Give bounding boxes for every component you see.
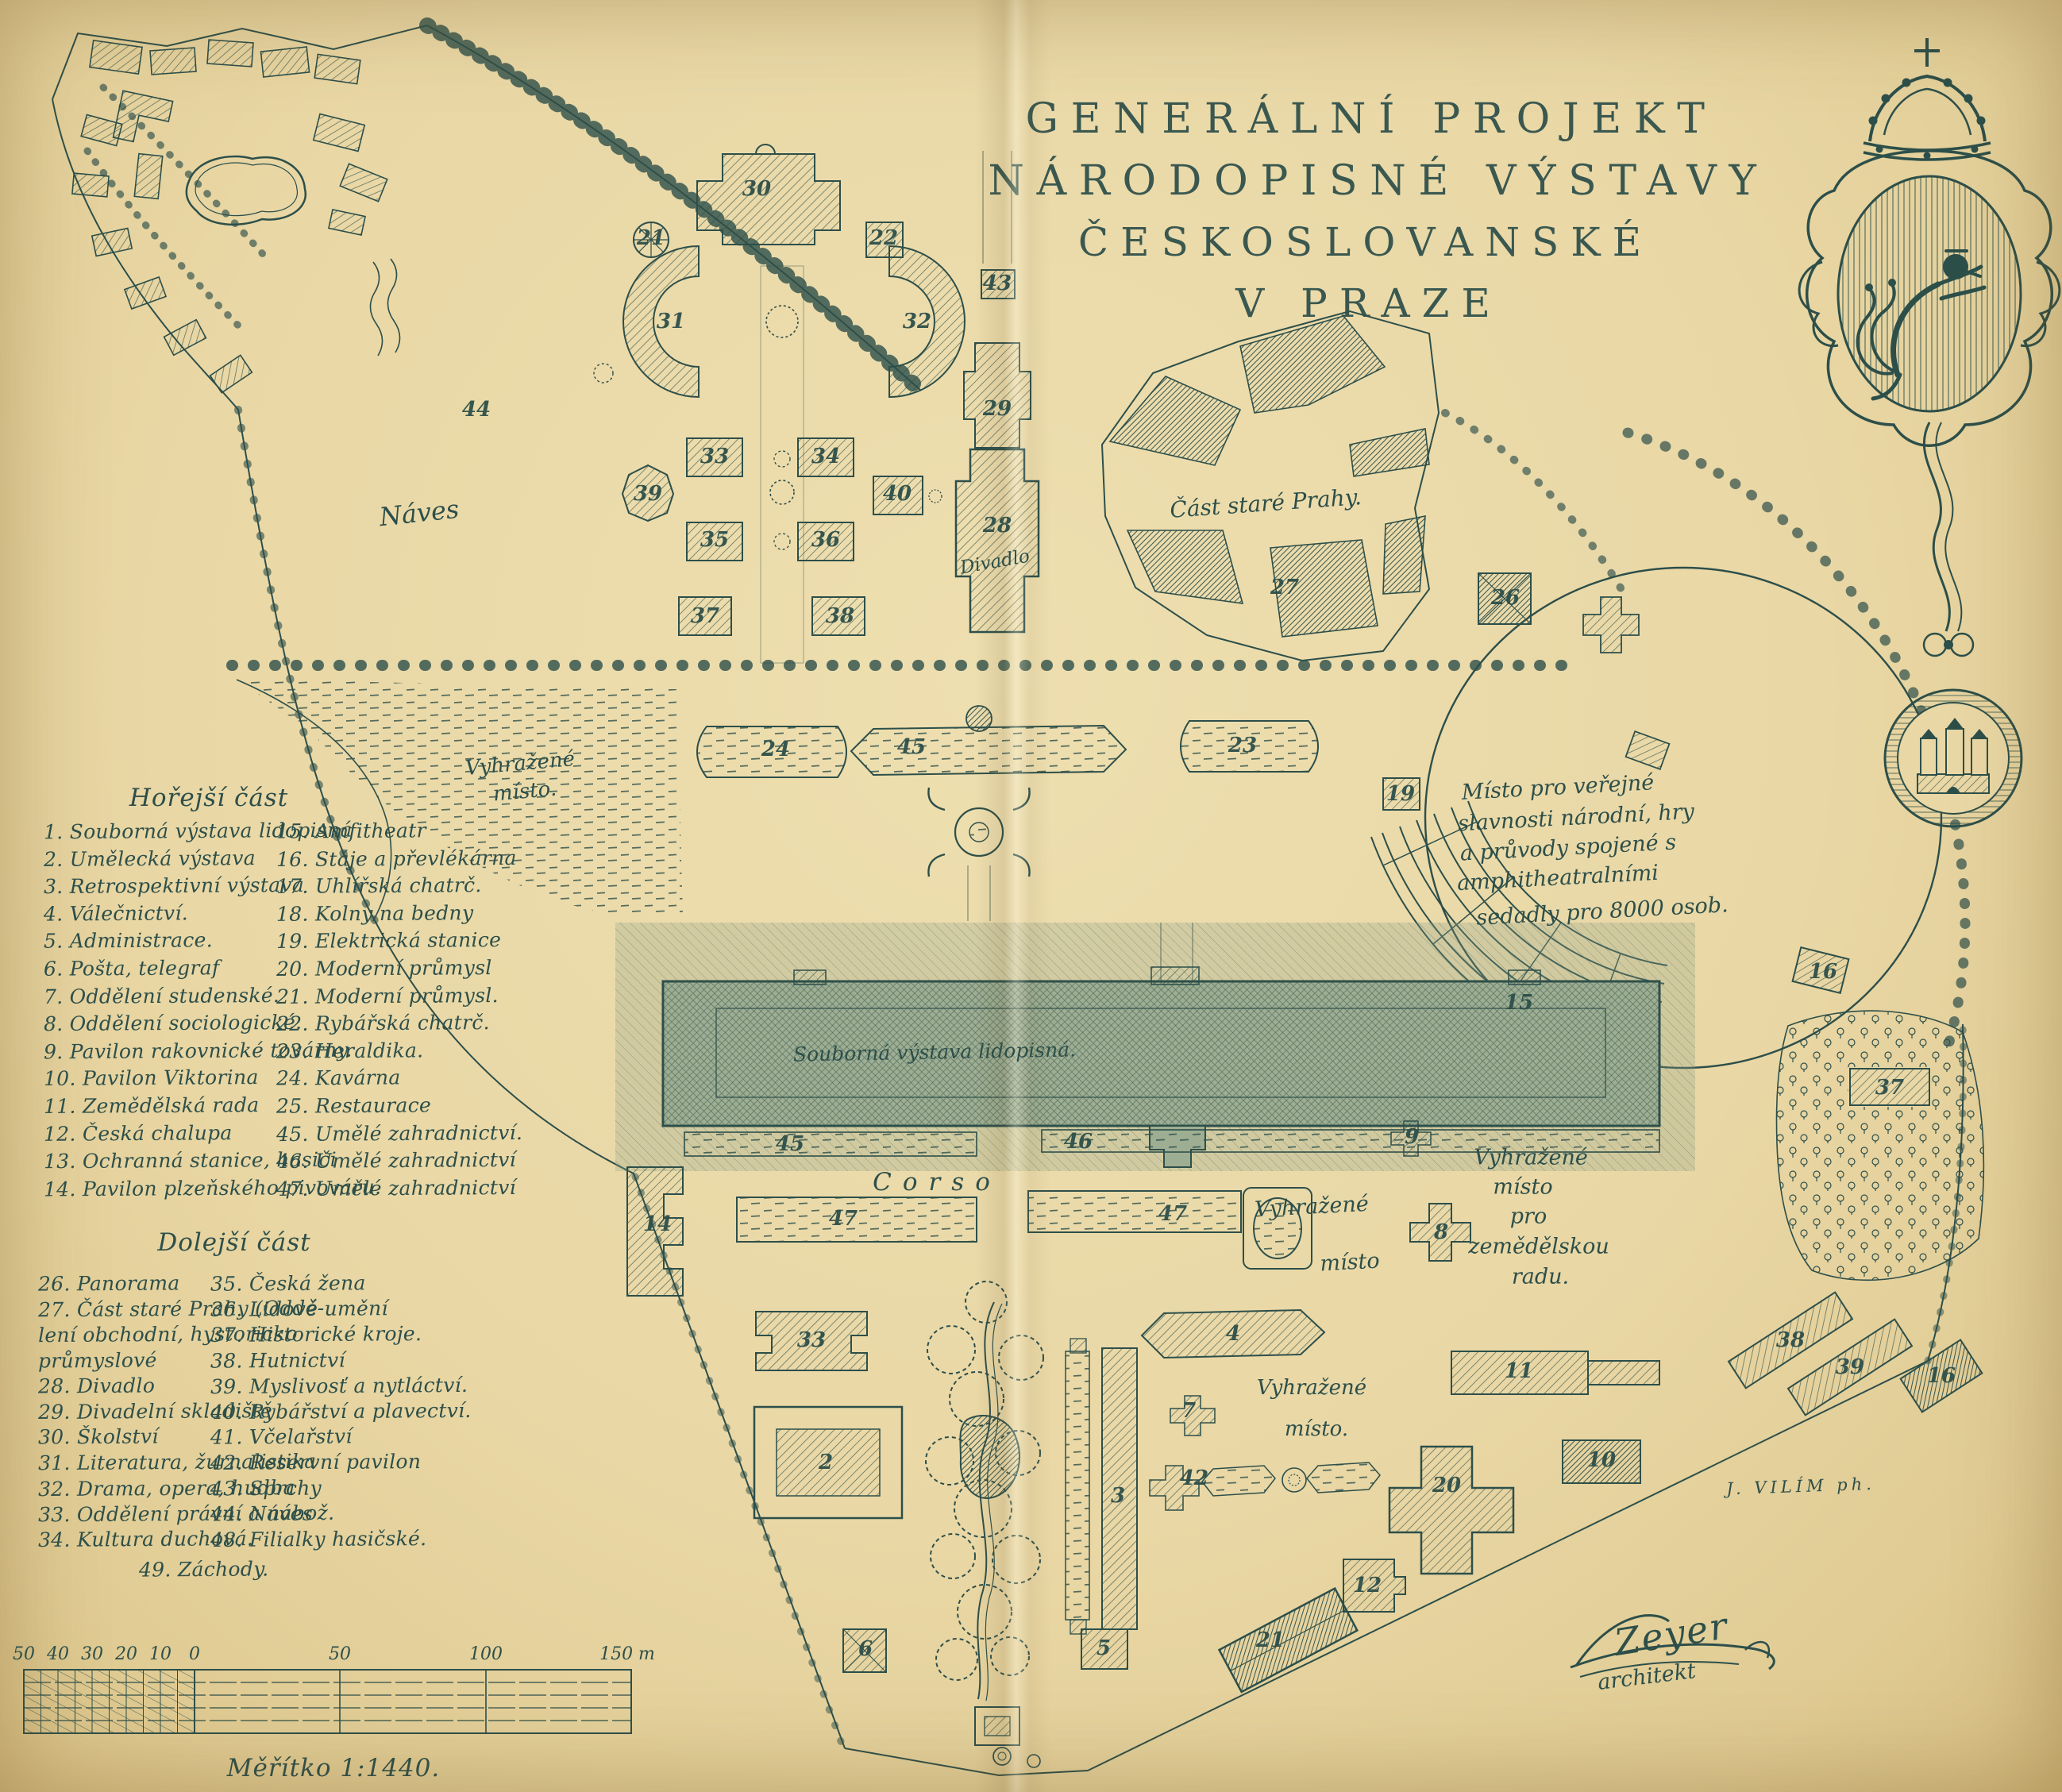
building-number-44: 44 [462, 398, 491, 422]
scale-tick-label: 0 [189, 1644, 200, 1664]
tree-border-diagonal [427, 25, 921, 391]
legend-lower-col2-line: 44. Náves [210, 1502, 313, 1526]
legend-lower-col2-line: 38. Hutnictví [210, 1348, 345, 1372]
scale-tick-label: 50 [329, 1644, 351, 1664]
building-number-12: 12 [1353, 1574, 1382, 1597]
scale-tick-label: 30 [81, 1644, 103, 1664]
strip-45 [684, 1132, 977, 1156]
building-number-36: 36 [811, 528, 840, 552]
building-number-31: 31 [657, 310, 685, 333]
building-number-21: 21 [1256, 1628, 1285, 1652]
legend-lower-col1-line: 28. Divadlo [38, 1374, 155, 1397]
building-number-35: 35 [700, 528, 729, 552]
scale-caption: Měřítko 1:1440. [227, 1754, 441, 1782]
building-number-3: 3 [1111, 1484, 1125, 1508]
legend-upper-col2-line: 18. Kolny na bedny [276, 901, 474, 926]
souborna-vystava-label: Souborná výstava lidopisná. [793, 1038, 1077, 1066]
legend-upper-col1-line: 2. Umělecká výstava [44, 846, 256, 871]
legend-lower-col1-line: 26. Panorama [38, 1271, 180, 1295]
building-number-10: 10 [1587, 1448, 1616, 1472]
legend-upper-col2-line: 21. Moderní průmysl. [276, 984, 499, 1008]
building-number-7: 7 [1181, 1399, 1196, 1423]
legend-upper-col2-line: 23. Heraldika. [276, 1039, 424, 1062]
legend-upper-col2-line: 24. Kavárna [276, 1066, 401, 1089]
building-number-45: 45 [776, 1132, 804, 1156]
building-number-29: 29 [983, 397, 1012, 421]
scale-tick-label: 20 [115, 1644, 137, 1664]
legend-lower-col2-line: 36. Lidové umění [210, 1297, 388, 1321]
building-number-27: 27 [1270, 576, 1299, 599]
parterre-45 [851, 726, 1126, 775]
garden-ornament [928, 788, 1029, 877]
legend-lower-col2-line: 40. Rybářství a plavectví. [210, 1399, 472, 1424]
building-number-33: 33 [700, 445, 729, 468]
village-naves-area [52, 25, 427, 410]
heraldic-crest [1799, 38, 2060, 827]
legend-upper-col1-line: 4. Válečnictví. [44, 901, 188, 925]
legend-upper-col1-line: 8. Oddělení sociologické. [44, 1011, 303, 1035]
building-number-39: 39 [634, 482, 662, 506]
building-number-5: 5 [1097, 1636, 1111, 1660]
legend-upper-col2-line: 17. Uhlířská chatrč. [276, 873, 482, 898]
building-number-26: 26 [1491, 586, 1520, 610]
map-title-line-2: NÁRODOPISNÉ VÝSTAVY [989, 157, 1769, 205]
legend-upper-col2-line: 16. Stáje a převlékárna [276, 846, 517, 871]
legend-upper-col1-line: 7. Oddělení studenské. [44, 984, 279, 1008]
legend-lower-col2-line: 41. Včelařství [210, 1424, 353, 1448]
building-21-lower [1220, 1589, 1358, 1692]
building-number-23: 23 [1228, 734, 1257, 757]
building-number-38: 38 [1776, 1328, 1805, 1352]
city-medallion [1885, 690, 2022, 827]
building-number-30: 30 [742, 177, 771, 201]
building-number-33: 33 [797, 1328, 826, 1352]
creek-pond [960, 1416, 1019, 1498]
building-number-46: 46 [1064, 1130, 1093, 1154]
legend-lower-col2-line: 43. Sprchy [210, 1477, 322, 1501]
strip-47b [1028, 1191, 1241, 1232]
scale-tick-label: 40 [47, 1644, 69, 1664]
formal-garden [594, 145, 1039, 663]
building-number-6: 6 [858, 1637, 873, 1661]
building-number-22: 22 [869, 226, 898, 250]
legend-upper-col2-line: 25. Restaurace [276, 1093, 431, 1117]
crown-icon [1864, 38, 1991, 160]
scale-tick-label: 50 [13, 1644, 35, 1664]
building-number-32: 32 [903, 310, 931, 333]
central-alley-trees [926, 1281, 1043, 1701]
right-forest [1729, 1011, 1983, 1415]
legend-lower-col1-line: 30. Školství [38, 1424, 159, 1448]
scale-bar [24, 1670, 631, 1733]
building-number-37: 37 [1875, 1076, 1904, 1100]
lower-grounds [627, 1121, 1659, 1767]
legend-header-upper: Hořejší část [129, 784, 288, 812]
building-number-8: 8 [1434, 1220, 1448, 1244]
scale-tick-label: 150 m [599, 1644, 655, 1664]
building-number-14: 14 [643, 1212, 672, 1236]
legend-upper-col2-line: 22. Rybářská chatrč. [276, 1011, 490, 1035]
building-number-2: 2 [819, 1451, 833, 1474]
vyhrazene-misto-3: radu. [1512, 1265, 1569, 1289]
legend-upper-col2-line: 46. Umělé zahradnictví [276, 1148, 516, 1173]
legend-upper-col2-line: 15. Amfitheatr [276, 819, 426, 842]
legend-upper-col1-line: 10. Pavilon Viktorina [44, 1066, 259, 1090]
building-20 [1389, 1447, 1513, 1574]
map-sheet: GENERÁLNÍ PROJEKT NÁRODOPISNÉ VÝSTAVY ČE… [0, 0, 2062, 1792]
building-number-20: 20 [1432, 1474, 1461, 1497]
building-number-47: 47 [1158, 1202, 1187, 1226]
building-number-34: 34 [811, 445, 840, 468]
map-title-line-1: GENERÁLNÍ PROJEKT [1025, 95, 1717, 143]
pond [187, 156, 306, 225]
building-number-42: 42 [1180, 1466, 1208, 1490]
vyhrazene-misto-3: pro [1510, 1204, 1547, 1229]
building-11 [1451, 1351, 1659, 1394]
cartouche [1799, 151, 2060, 445]
vyhrazene-misto-3: Vyhražené [1474, 1146, 1588, 1170]
ribbon [1924, 422, 1973, 656]
cross-building [1583, 597, 1639, 653]
legend-lower-col2-line: 35. Česká žena [210, 1271, 366, 1295]
legend-upper-col2-line: 45. Umělé zahradnictví. [276, 1121, 522, 1146]
building-number-15: 15 [1505, 991, 1533, 1015]
legend-lower-col2-line: 37. Historické kroje. [210, 1322, 422, 1347]
map-title-line-3: ČESKOSLOVANSKÉ [1078, 219, 1653, 265]
building-number-24: 24 [761, 738, 790, 761]
building-number-4: 4 [1226, 1322, 1240, 1346]
building-number-40: 40 [883, 482, 912, 506]
legend-upper-col2-line: 19. Elektrická stanice [276, 928, 501, 953]
building-number-43: 43 [983, 272, 1012, 295]
village-houses [72, 40, 387, 393]
legend-upper-col1-line: 6. Pošta, telegraf [44, 956, 220, 981]
building-number-28: 28 [983, 514, 1012, 538]
legend-lower-col2-line: 39. Myslivosť a nytláctví. [210, 1374, 468, 1398]
entrance-gate [975, 1707, 1040, 1767]
vyhrazene-misto-3: místo [1493, 1175, 1552, 1200]
legend-upper-col1-line: 12. Česká chalupa [44, 1121, 233, 1146]
building-number-38: 38 [826, 604, 854, 628]
corso-label: Corso [873, 1168, 1001, 1197]
legend-upper-col2-line: 47. Umělé zahradnictví [276, 1176, 516, 1200]
building-number-47: 47 [829, 1207, 858, 1231]
building-number-39: 39 [1836, 1355, 1864, 1379]
legend-upper-col2-line: 20. Moderní průmysl [276, 956, 492, 981]
building-number-37: 37 [691, 604, 719, 628]
legend-lower-col1-line: průmyslové [38, 1348, 157, 1372]
scale-tick-label: 10 [149, 1644, 172, 1664]
legend-upper-col1-line: 5. Administrace. [44, 928, 213, 952]
legend-header-lower: Dolejší část [157, 1228, 310, 1257]
building-number-16: 16 [1927, 1364, 1956, 1388]
building-number-11: 11 [1505, 1359, 1533, 1383]
vyhrazene-misto-4: místo. [1285, 1417, 1348, 1441]
vyhrazene-misto-3: zemědělskou [1468, 1235, 1609, 1259]
building-number-9: 9 [1405, 1125, 1419, 1149]
building-number-19: 19 [1386, 782, 1415, 806]
building-28-divadlo [956, 449, 1039, 632]
building-number-45: 45 [897, 735, 926, 759]
old-prague-section [1102, 311, 1639, 661]
building-29 [964, 343, 1031, 448]
map-title-line-4: V PRAZE [1235, 280, 1502, 326]
legend-extra-line: 49. Záchody. [139, 1557, 269, 1581]
legend-upper-col1-line: 11. Zemědělská rada [44, 1093, 260, 1118]
garden-pavilions [622, 438, 923, 635]
vyhrazene-misto-4: Vyhražené [1257, 1376, 1366, 1400]
legend-lower-col2-line: 42. Reservní pavilon [210, 1450, 421, 1474]
building-number-21: 21 [637, 226, 665, 250]
legend-lower-col2-line: 48. Filialky hasičské. [210, 1527, 427, 1551]
scale-tick-label: 100 [469, 1644, 503, 1664]
vyhrazene-misto-2: místo [1320, 1249, 1381, 1277]
building-number-16: 16 [1809, 960, 1837, 984]
legend-upper-col1-line: 3. Retrospektivní výstava [44, 873, 304, 898]
